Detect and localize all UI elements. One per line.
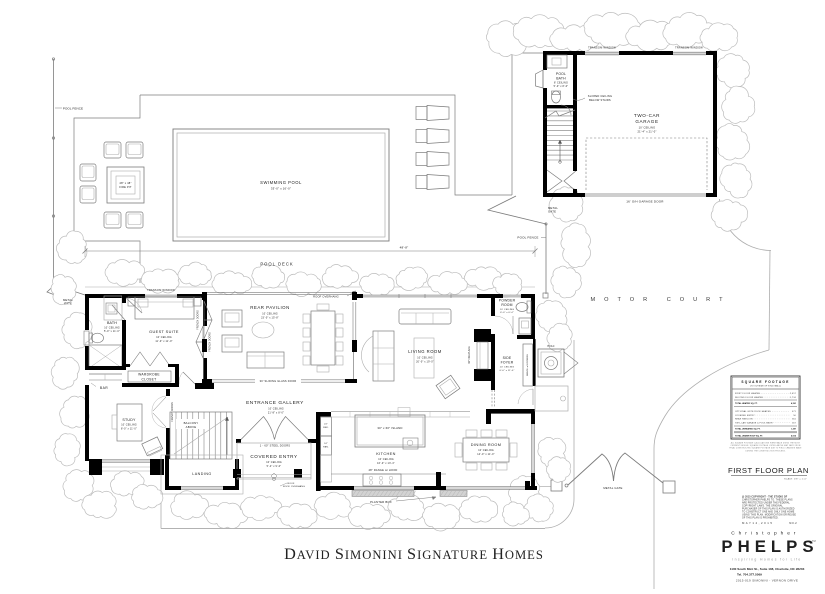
svg-text:CLOSET: CLOSET bbox=[142, 378, 157, 382]
svg-text:20'-0" x 19'-0": 20'-0" x 19'-0" bbox=[416, 360, 434, 363]
svg-text:ROOF OVERHANG: ROOF OVERHANG bbox=[283, 485, 305, 488]
svg-text:SQUARE FOOTAGE: SQUARE FOOTAGE bbox=[741, 380, 789, 384]
svg-text:ROOF: ROOF bbox=[287, 483, 295, 485]
svg-text:REF.: REF. bbox=[323, 427, 329, 429]
svg-text:ALL SQUARE FOOTAGE CALCULATION: ALL SQUARE FOOTAGE CALCULATIONS WERE MAD… bbox=[731, 442, 800, 445]
svg-text:5'-0" x 8'-0": 5'-0" x 8'-0" bbox=[554, 85, 569, 88]
svg-text:DURING THE CONSTRUCTION PROCES: DURING THE CONSTRUCTION PROCESS. bbox=[745, 450, 785, 452]
svg-text:C h r i s t o p h e r: C h r i s t o p h e r bbox=[731, 531, 796, 537]
svg-text:10' CEILING: 10' CEILING bbox=[639, 126, 656, 130]
svg-text:567: 567 bbox=[792, 422, 797, 424]
svg-text:TOTAL UNDER ROOF SQ. FT.: TOTAL UNDER ROOF SQ. FT. bbox=[735, 434, 763, 437]
svg-text:DAVID SIMONINI SIGNATURE HOMES: DAVID SIMONINI SIGNATURE HOMES bbox=[284, 545, 544, 563]
svg-text:DINING ROOM: DINING ROOM bbox=[471, 443, 502, 447]
svg-text:WARDROBE: WARDROBE bbox=[138, 373, 160, 377]
svg-text:24": 24" bbox=[324, 424, 328, 426]
svg-text:FOYER: FOYER bbox=[501, 361, 514, 365]
svg-text:BATH: BATH bbox=[107, 321, 117, 325]
svg-text:1,387: 1,387 bbox=[791, 429, 797, 431]
svg-text:14'-0" x 11'-0": 14'-0" x 11'-0" bbox=[477, 453, 495, 456]
svg-text:ROOM: ROOM bbox=[501, 303, 512, 307]
svg-text:HVAC: HVAC bbox=[547, 345, 554, 348]
svg-text:361: 361 bbox=[792, 419, 797, 421]
svg-text:Inspiring Homes for Life: Inspiring Homes for Life bbox=[732, 558, 801, 562]
svg-text:16'-0" x 13'-4": 16'-0" x 13'-4" bbox=[377, 462, 395, 465]
svg-text:23'-0" x 15'-8": 23'-0" x 15'-8" bbox=[261, 316, 279, 319]
svg-text:4,391: 4,391 bbox=[791, 402, 797, 405]
svg-text:TWO-CAR GARAGE & POOL BATH: TWO-CAR GARAGE & POOL BATH bbox=[735, 421, 773, 424]
svg-text:SLOPED CEILING: SLOPED CEILING bbox=[588, 94, 612, 98]
svg-text:46" FIREPLACE: 46" FIREPLACE bbox=[468, 346, 471, 364]
svg-text:48" x 48": 48" x 48" bbox=[119, 181, 131, 185]
svg-text:6'-0" x 6'-4": 6'-0" x 6'-4" bbox=[500, 312, 514, 314]
svg-text:LIVING ROOM: LIVING ROOM bbox=[408, 349, 441, 354]
svg-text:10' CEILING: 10' CEILING bbox=[121, 424, 137, 427]
svg-text:5'-4" x 9'-0": 5'-4" x 9'-0" bbox=[267, 465, 282, 468]
svg-text:GATE: GATE bbox=[548, 210, 556, 214]
svg-text:POOL: POOL bbox=[556, 72, 566, 76]
svg-text:M A Y 1 4 , 2 0 1 5: M A Y 1 4 , 2 0 1 5 bbox=[742, 521, 772, 525]
svg-text:PURCHASER OF THIS PLAN IS AUTH: PURCHASER OF THIS PLAN IS AUTHORIZED bbox=[742, 508, 795, 511]
svg-text:BAR: BAR bbox=[100, 386, 108, 390]
svg-text:SECOND FLOOR HEATED: SECOND FLOOR HEATED bbox=[735, 396, 764, 399]
svg-text:33'-0" x 16'-0": 33'-0" x 16'-0" bbox=[271, 187, 291, 191]
svg-text:TRANSOM WINDOW: TRANSOM WINDOW bbox=[675, 46, 703, 50]
svg-text:11'-0" x 11'-0": 11'-0" x 11'-0" bbox=[155, 340, 172, 343]
svg-text:FIRE PIT: FIRE PIT bbox=[119, 185, 131, 189]
svg-text:24": 24" bbox=[324, 443, 328, 445]
svg-text:PHELPS: PHELPS bbox=[721, 537, 818, 556]
svg-text:4,916: 4,916 bbox=[791, 434, 797, 437]
svg-text:BELOW STAIRS: BELOW STAIRS bbox=[589, 98, 611, 102]
svg-text:TM: TM bbox=[812, 540, 816, 543]
svg-text:8'-0" x 11'-0": 8'-0" x 11'-0" bbox=[121, 427, 137, 430]
svg-text:CURRENT DESIGN. SQUARE FOOTAGE: CURRENT DESIGN. SQUARE FOOTAGE LISTED AB… bbox=[730, 444, 800, 447]
svg-text:10' CEILING: 10' CEILING bbox=[156, 336, 172, 339]
svg-text:SWIMMING POOL: SWIMMING POOL bbox=[260, 180, 302, 185]
svg-text:30' SLIDING GLASS DOOR: 30' SLIDING GLASS DOOR bbox=[260, 379, 297, 383]
svg-text:POOL FENCE: POOL FENCE bbox=[63, 107, 83, 111]
svg-text:OF THIS PLAN IS PROHIBITED.: OF THIS PLAN IS PROHIBITED. bbox=[742, 517, 779, 520]
svg-text:TO CONSTRUCT ONE AND ONLY ONE: TO CONSTRUCT ONE AND ONLY ONE HOME bbox=[742, 511, 795, 514]
svg-text:GARAGE: GARAGE bbox=[635, 119, 658, 124]
svg-text:POOL DECK: POOL DECK bbox=[260, 262, 293, 267]
svg-text:LANDING: LANDING bbox=[192, 472, 211, 476]
svg-text:COVERED ENTRY: COVERED ENTRY bbox=[250, 454, 297, 459]
svg-text:48" RANGE w/ HOOD: 48" RANGE w/ HOOD bbox=[369, 468, 398, 472]
svg-text:USING THIS PLAN. MODIFICATION: USING THIS PLAN. MODIFICATION OR REUSE bbox=[742, 514, 796, 517]
svg-text:10' CEILING: 10' CEILING bbox=[262, 313, 278, 316]
svg-text:GUEST SUITE: GUEST SUITE bbox=[149, 330, 179, 334]
svg-text:TOTAL UNHEATED SQ. FT.: TOTAL UNHEATED SQ. FT. bbox=[735, 428, 761, 431]
svg-text:TWO-CAR: TWO-CAR bbox=[634, 113, 660, 118]
svg-text:1,734: 1,734 bbox=[790, 397, 797, 399]
svg-text:ROOF OVERHANG: ROOF OVERHANG bbox=[313, 295, 339, 299]
svg-text:21'-8" x 8'-0": 21'-8" x 8'-0" bbox=[268, 411, 284, 414]
svg-text:1 - 60" STEEL DOORS: 1 - 60" STEEL DOORS bbox=[260, 444, 290, 448]
svg-text:6'-0" x 11'-0": 6'-0" x 11'-0" bbox=[500, 370, 515, 372]
svg-text:STUDY: STUDY bbox=[122, 418, 136, 422]
svg-text:48'-8": 48'-8" bbox=[400, 246, 409, 250]
svg-text:ARE PROTECTED UNDER THE FEDERA: ARE PROTECTED UNDER THE FEDERAL bbox=[742, 502, 790, 505]
svg-text:FRENCH DOORS: FRENCH DOORS bbox=[197, 310, 200, 330]
svg-text:FINAL CONSTRUCTED SQUARE FOOTA: FINAL CONSTRUCTED SQUARE FOOTAGE DUE TO … bbox=[729, 447, 802, 450]
svg-text:MOTOR COURT: MOTOR COURT bbox=[590, 297, 731, 303]
svg-text:1100 South Mint St., Suite 108: 1100 South Mint St., Suite 108, Charlott… bbox=[730, 567, 805, 571]
svg-text:10' CEILING: 10' CEILING bbox=[268, 408, 284, 411]
svg-text:2,657: 2,657 bbox=[790, 393, 797, 395]
svg-text:SIDE: SIDE bbox=[503, 356, 512, 360]
svg-text:SCALE: 1/8" = 1'-0": SCALE: 1/8" = 1'-0" bbox=[784, 478, 807, 481]
svg-text:ABOVE: ABOVE bbox=[186, 425, 197, 429]
svg-text:@ 2015 COPYRIGHT - THE STUDIO: @ 2015 COPYRIGHT - THE STUDIO OF bbox=[742, 497, 788, 499]
svg-text:POOL FENCE: POOL FENCE bbox=[517, 236, 538, 240]
svg-text:TRANSOM WINDOW: TRANSOM WINDOW bbox=[588, 46, 616, 50]
svg-text:OPTIONAL GSTE ROOF HEATED: OPTIONAL GSTE ROOF HEATED bbox=[735, 410, 771, 413]
svg-text:METAL GATE: METAL GATE bbox=[603, 486, 622, 490]
svg-text:471: 471 bbox=[792, 411, 797, 413]
svg-text:NO.2: NO.2 bbox=[789, 521, 797, 525]
svg-text:FRENCH DOORS: FRENCH DOORS bbox=[209, 332, 212, 352]
svg-text:16' O/H GARAGE DOOR: 16' O/H GARAGE DOOR bbox=[626, 200, 664, 204]
svg-text:10' CEILING: 10' CEILING bbox=[500, 367, 515, 369]
svg-text:5'-0" x 11'-0": 5'-0" x 11'-0" bbox=[104, 330, 120, 333]
svg-text:POWDER: POWDER bbox=[499, 299, 516, 303]
svg-text:10' CEILING: 10' CEILING bbox=[266, 461, 282, 464]
svg-text:KITCHEN: KITCHEN bbox=[376, 452, 395, 456]
svg-text:REAR PAVILION: REAR PAVILION bbox=[250, 305, 290, 310]
svg-text:10' CEILING: 10' CEILING bbox=[478, 449, 494, 452]
svg-text:TRANSOM WINDOW: TRANSOM WINDOW bbox=[147, 288, 175, 292]
svg-text:GATE: GATE bbox=[64, 302, 72, 306]
svg-text:PLANTER BOX: PLANTER BOX bbox=[370, 500, 392, 504]
svg-text:PAN.: PAN. bbox=[323, 445, 329, 448]
svg-text:BENCH w/ LOCKERS: BENCH w/ LOCKERS bbox=[527, 354, 529, 376]
svg-text:REAR PAVILION: REAR PAVILION bbox=[735, 418, 753, 421]
svg-text:FIRST FLOOR PLAN: FIRST FLOOR PLAN bbox=[728, 466, 809, 475]
svg-text:10' CEILING: 10' CEILING bbox=[378, 458, 394, 461]
svg-text:FIRST FLOOR HEATED: FIRST FLOOR HEATED bbox=[735, 392, 761, 395]
svg-text:10' CEILING: 10' CEILING bbox=[417, 357, 433, 360]
svg-text:BATH: BATH bbox=[556, 77, 566, 81]
svg-text:21'-4" x 21'-0": 21'-4" x 21'-0" bbox=[638, 130, 657, 134]
svg-text:ENTRANCE GALLERY: ENTRANCE GALLERY bbox=[246, 400, 304, 406]
svg-text:2015-019 SIMONINI - VERNON: 2015-019 SIMONINI - VERNON DRIVE bbox=[736, 579, 798, 583]
svg-text:COPYRIGHT LAWS. THE ORIGINAL: COPYRIGHT LAWS. THE ORIGINAL bbox=[742, 505, 784, 508]
svg-text:CHRISTOPHER PHELPS TO. THESE P: CHRISTOPHER PHELPS TO. THESE PLANS bbox=[742, 499, 793, 502]
svg-text:Tel. 704.377.5569: Tel. 704.377.5569 bbox=[737, 573, 762, 577]
svg-text:(TO OUTSIDE OF STUD WALL): (TO OUTSIDE OF STUD WALL) bbox=[750, 385, 781, 388]
svg-text:30" x 60" ISLAND: 30" x 60" ISLAND bbox=[377, 426, 402, 430]
svg-text:TOTAL HEATED SQ. FT.: TOTAL HEATED SQ. FT. bbox=[735, 402, 758, 405]
svg-text:10' CEILING: 10' CEILING bbox=[500, 309, 515, 311]
